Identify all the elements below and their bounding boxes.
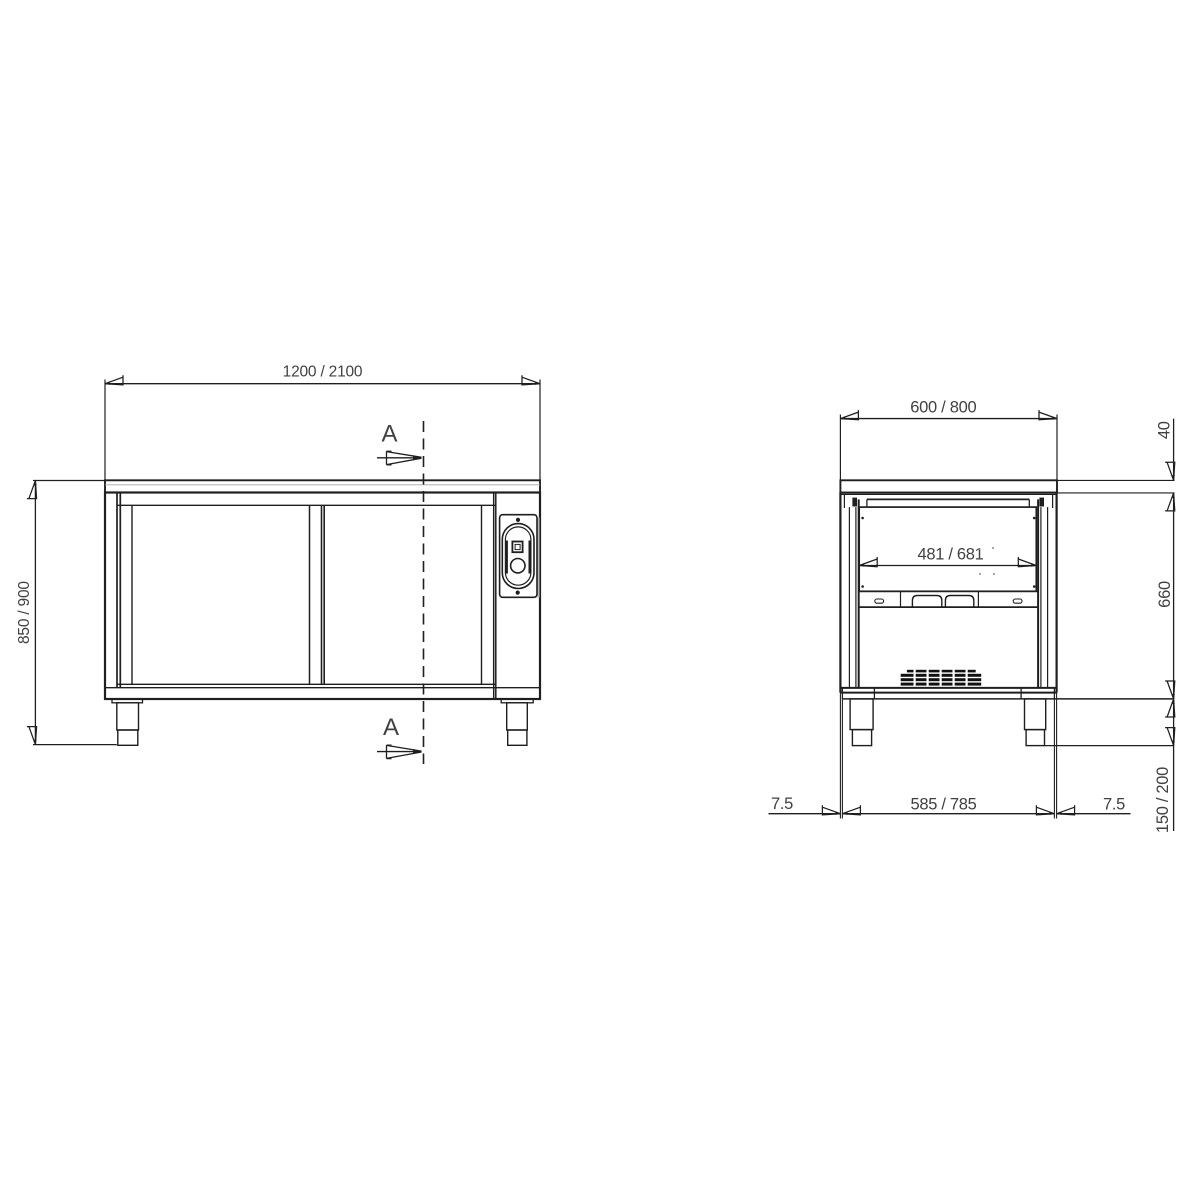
svg-text:40: 40 <box>1156 421 1174 439</box>
svg-text:660: 660 <box>1156 581 1174 608</box>
svg-text:600 / 800: 600 / 800 <box>910 399 976 417</box>
svg-text:7.5: 7.5 <box>1103 796 1125 814</box>
svg-text:850 / 900: 850 / 900 <box>16 581 33 644</box>
svg-text:1200 / 2100: 1200 / 2100 <box>283 364 363 381</box>
svg-text:7.5: 7.5 <box>771 795 793 813</box>
svg-text:150 / 200: 150 / 200 <box>1154 767 1172 833</box>
svg-text:585 / 785: 585 / 785 <box>910 796 976 814</box>
svg-text:A: A <box>383 714 399 741</box>
svg-text:481 / 681: 481 / 681 <box>917 546 983 564</box>
svg-text:A: A <box>381 421 397 448</box>
